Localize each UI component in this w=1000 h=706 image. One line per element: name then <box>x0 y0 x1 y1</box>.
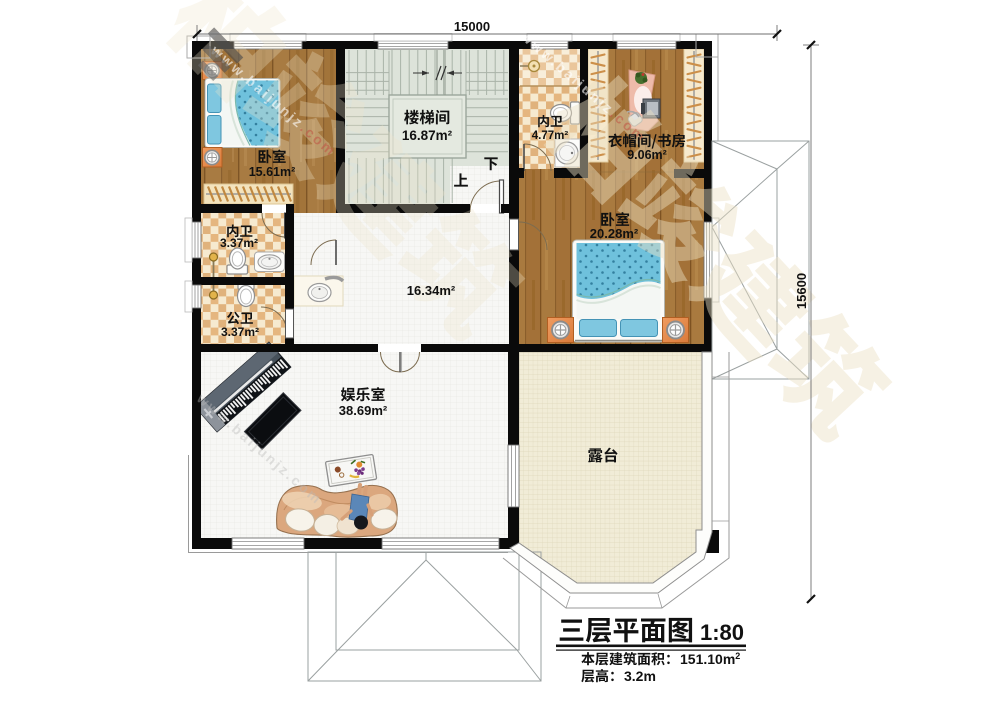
svg-text:15600: 15600 <box>794 273 809 309</box>
svg-text:15.61m²: 15.61m² <box>249 165 296 179</box>
svg-text:16.34m²: 16.34m² <box>407 283 456 298</box>
svg-text:15000: 15000 <box>454 19 490 34</box>
svg-text:16.87m²: 16.87m² <box>402 128 453 143</box>
svg-text:3.37m²: 3.37m² <box>220 236 258 250</box>
svg-text:38.69m²: 38.69m² <box>339 403 388 418</box>
svg-text:20.28m²: 20.28m² <box>590 226 639 241</box>
svg-text:3.37m²: 3.37m² <box>221 325 259 339</box>
svg-text:9.06m²: 9.06m² <box>627 148 667 162</box>
svg-text:3.2m: 3.2m <box>624 668 656 684</box>
svg-text:4.77m²: 4.77m² <box>532 130 569 142</box>
svg-text:1:80: 1:80 <box>700 620 744 645</box>
svg-text:151.10m2: 151.10m2 <box>680 651 740 667</box>
